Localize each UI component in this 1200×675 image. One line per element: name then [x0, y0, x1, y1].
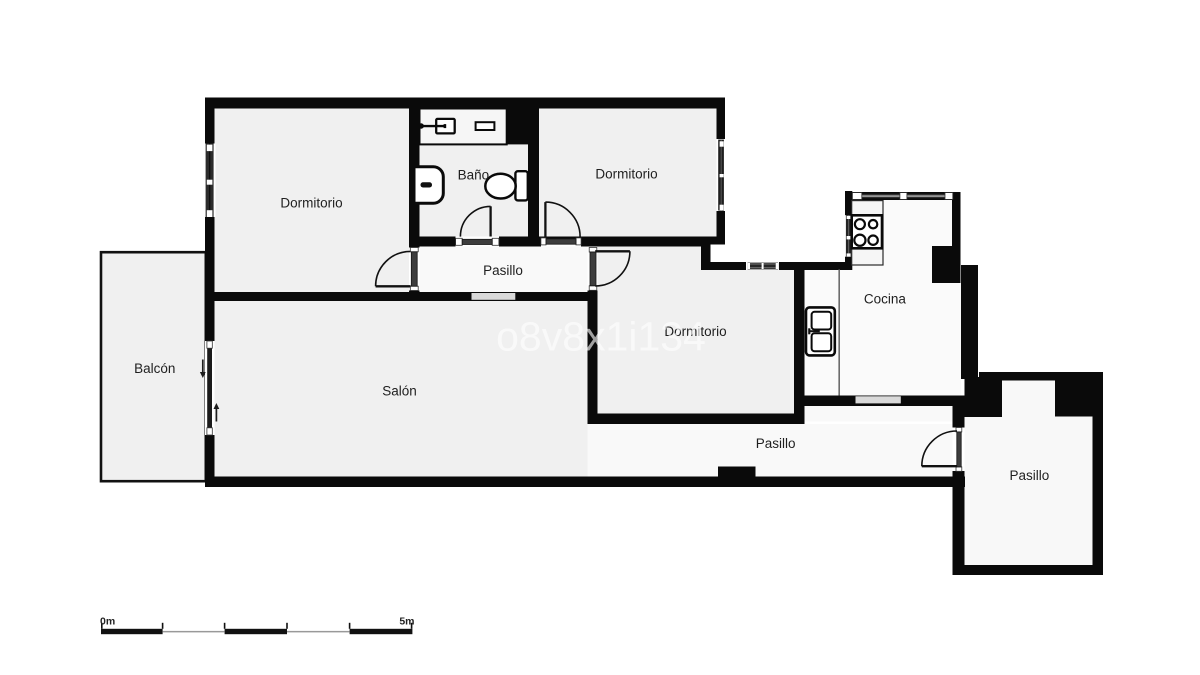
svg-text:0m: 0m — [100, 616, 115, 628]
svg-text:Salón: Salón — [382, 384, 417, 399]
svg-text:Baño: Baño — [458, 168, 490, 183]
svg-text:Pasillo: Pasillo — [1010, 468, 1050, 483]
svg-text:Balcón: Balcón — [134, 361, 175, 376]
svg-text:5m: 5m — [399, 616, 414, 628]
svg-text:Dormitorio: Dormitorio — [280, 196, 342, 211]
svg-text:Dormitorio: Dormitorio — [595, 167, 657, 182]
svg-text:o8v8x1i134: o8v8x1i134 — [496, 314, 706, 360]
svg-text:Pasillo: Pasillo — [756, 436, 796, 451]
svg-text:Pasillo: Pasillo — [483, 263, 523, 278]
svg-text:Cocina: Cocina — [864, 292, 907, 307]
